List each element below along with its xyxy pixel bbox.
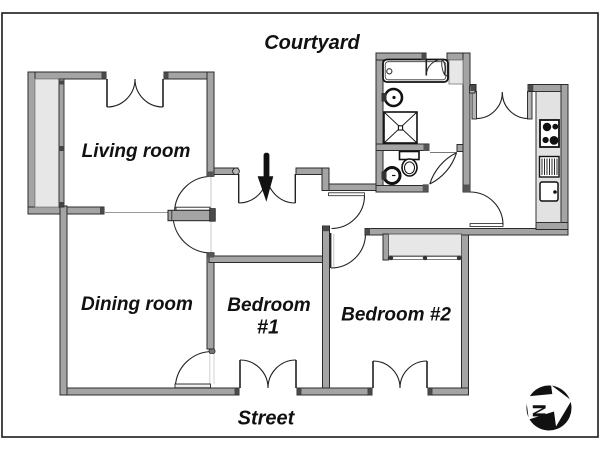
svg-text:#1: #1 <box>257 317 279 339</box>
svg-text:Street: Street <box>238 408 296 430</box>
svg-text:Living room: Living room <box>82 141 191 162</box>
svg-text:Bedroom: Bedroom <box>227 295 311 316</box>
svg-text:Dining room: Dining room <box>81 294 193 315</box>
svg-text:Bedroom #2: Bedroom #2 <box>341 305 451 326</box>
svg-text:Courtyard: Courtyard <box>264 32 360 54</box>
